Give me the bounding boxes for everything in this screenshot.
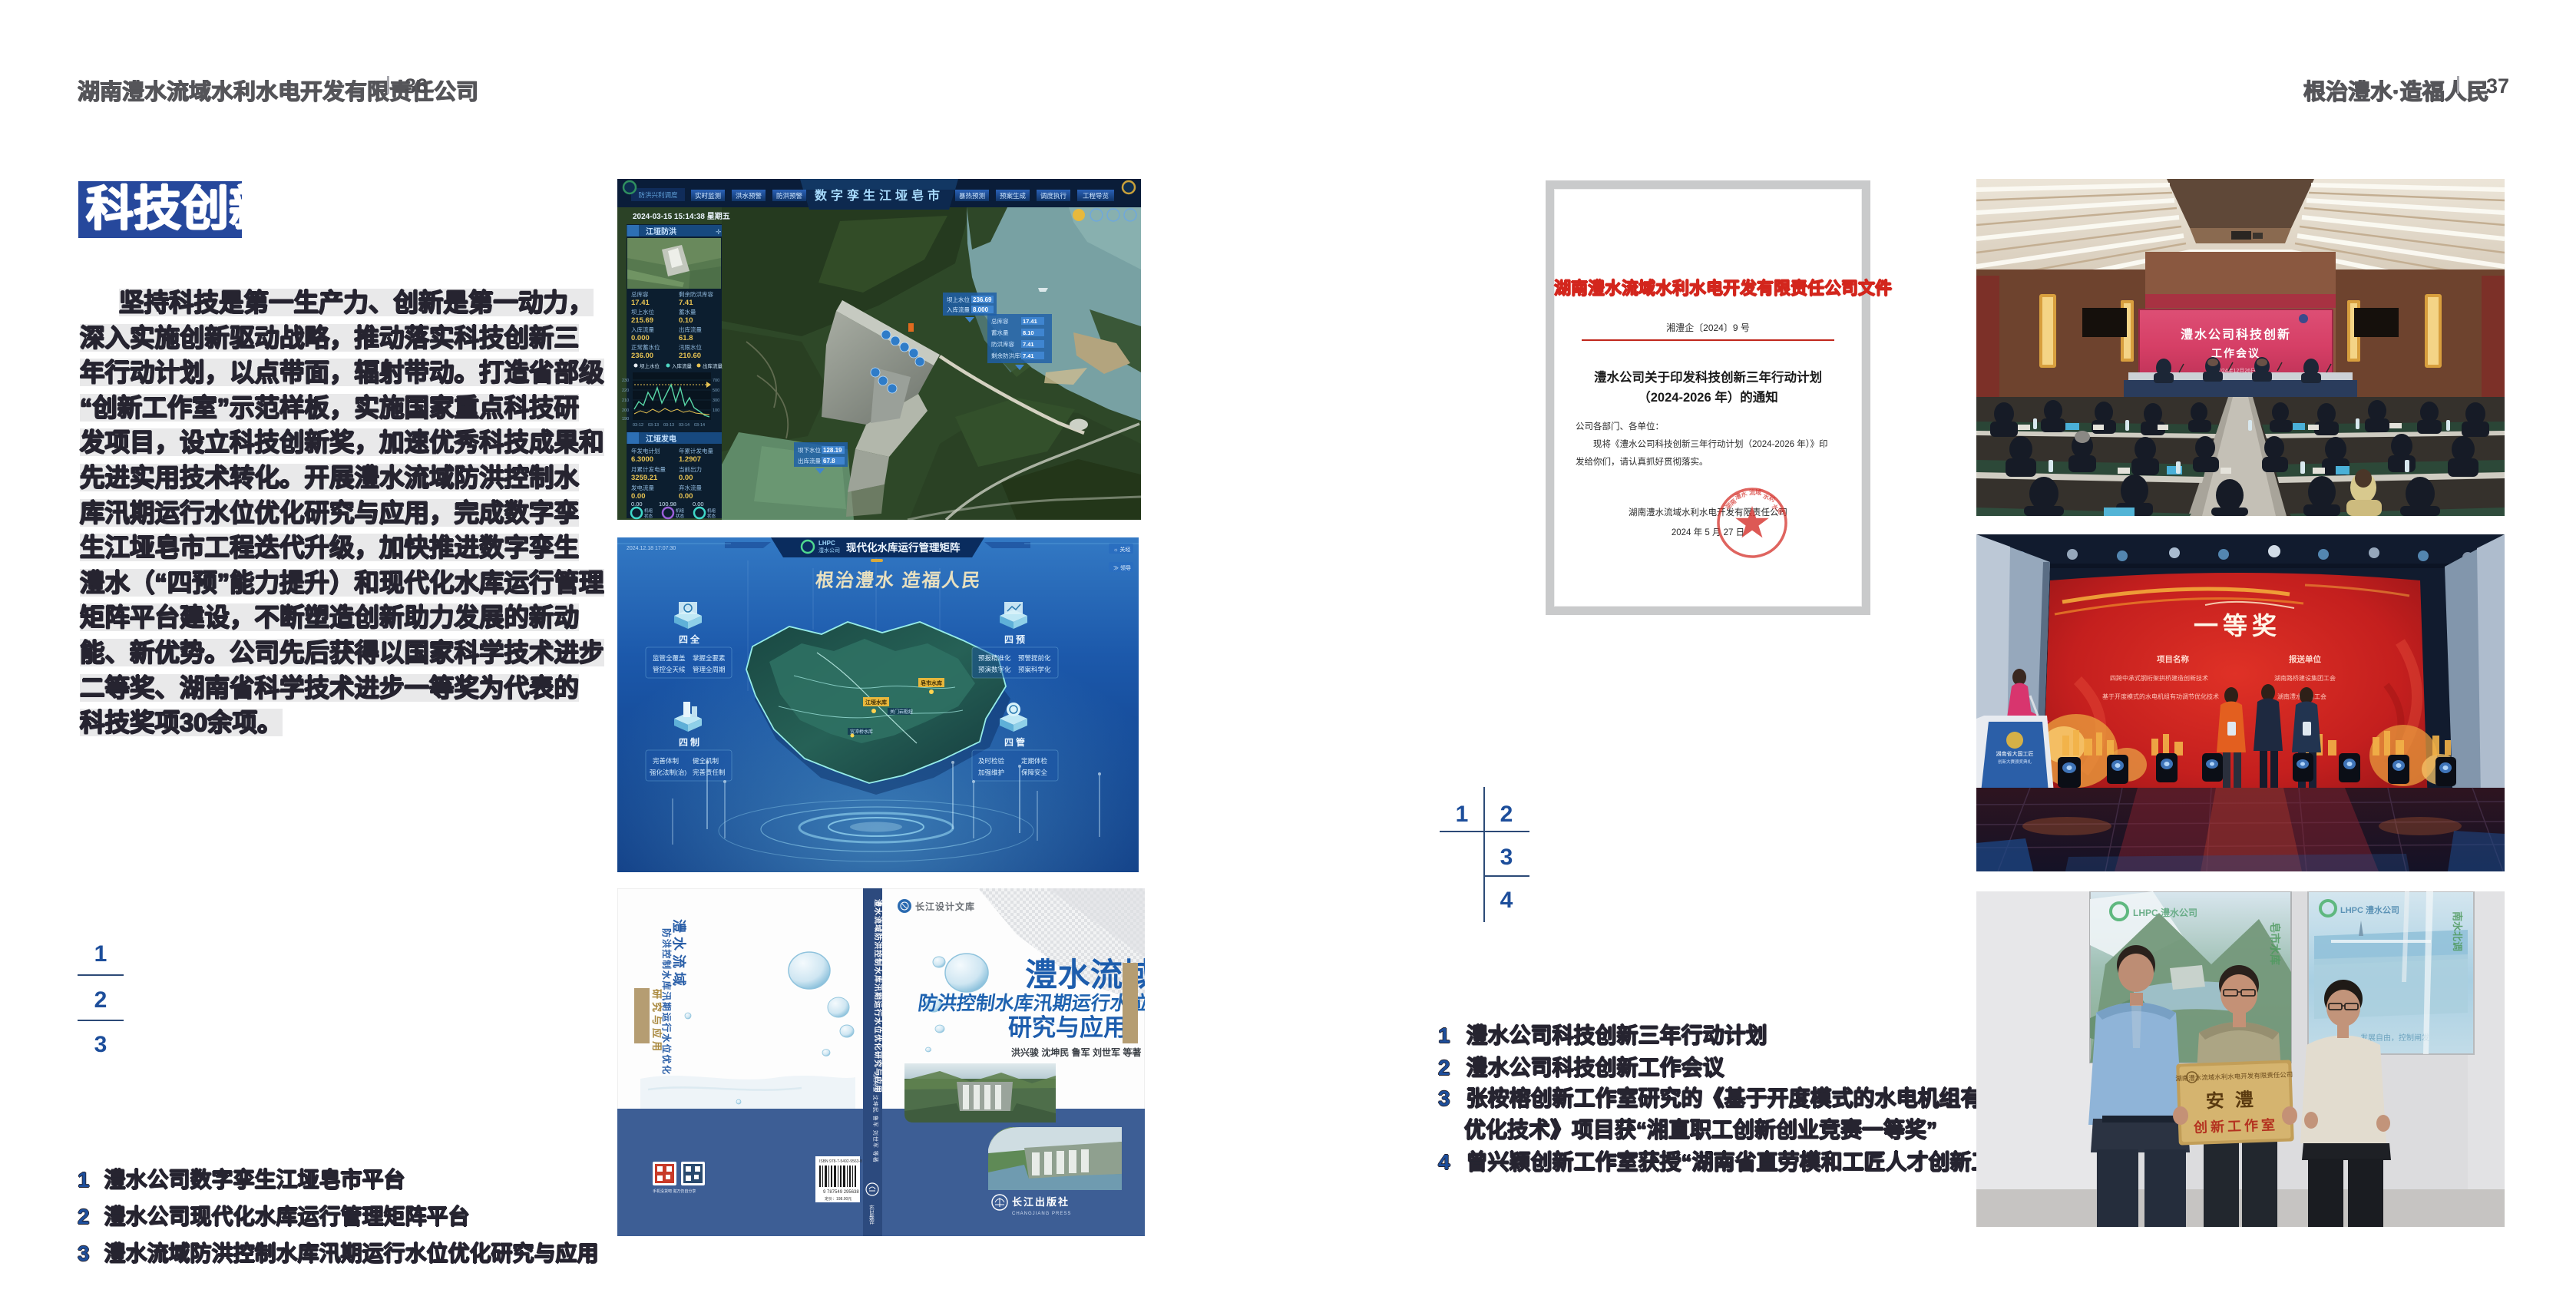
svg-text:弃水流量: 弃水流量 <box>679 484 702 491</box>
svg-text:宜冲桥水库: 宜冲桥水库 <box>850 729 873 735</box>
svg-text:230: 230 <box>622 379 629 383</box>
svg-text:南水北调: 南水北调 <box>2452 911 2463 951</box>
svg-text:实时监测: 实时监测 <box>695 192 721 200</box>
svg-text:水电: 水电 <box>1770 501 1784 516</box>
svg-text:0.00: 0.00 <box>631 501 643 508</box>
svg-text:0.000: 0.000 <box>631 334 650 342</box>
svg-text:220: 220 <box>622 388 629 393</box>
svg-text:CHANGJIANG PRESS: CHANGJIANG PRESS <box>1012 1212 1071 1216</box>
svg-text:掌握全要素: 掌握全要素 <box>693 654 726 662</box>
svg-text:四全: 四全 <box>679 633 702 645</box>
svg-text:03-14: 03-14 <box>679 423 689 428</box>
svg-text:03-12: 03-12 <box>633 423 643 428</box>
svg-text:四预: 四预 <box>1004 634 1027 645</box>
svg-text:LHPC: LHPC <box>818 540 835 547</box>
svg-text:长江出版社: 长江出版社 <box>868 1205 875 1225</box>
svg-text:预演数字化: 预演数字化 <box>978 666 1011 673</box>
svg-text:0.00: 0.00 <box>679 492 693 501</box>
svg-text:定期体检: 定期体检 <box>1021 757 1048 765</box>
svg-text:工程导览: 工程导览 <box>1083 192 1109 200</box>
svg-text:总库容: 总库容 <box>991 317 1009 325</box>
svg-text:ISBN 978-7-5492-9563-8: ISBN 978-7-5492-9563-8 <box>819 1159 862 1164</box>
svg-text:报送单位: 报送单位 <box>2289 654 2322 664</box>
svg-text:汛限水位: 汛限水位 <box>679 343 702 351</box>
svg-text:700: 700 <box>713 379 719 383</box>
svg-text:管控全天候: 管控全天候 <box>653 666 686 673</box>
svg-text:✛: ✛ <box>716 228 722 236</box>
svg-text:0.00: 0.00 <box>631 492 646 501</box>
svg-text:月累计发电量: 月累计发电量 <box>631 465 666 473</box>
svg-text:预案科学化: 预案科学化 <box>1018 666 1051 673</box>
svg-text:四制: 四制 <box>679 736 702 748</box>
svg-text:100.98: 100.98 <box>659 501 676 508</box>
svg-text:2024-03-15 15:14:38 星期五: 2024-03-15 15:14:38 星期五 <box>633 211 730 221</box>
svg-text:128.19: 128.19 <box>823 447 842 454</box>
svg-text:300: 300 <box>713 398 719 403</box>
svg-text:江垭水库: 江垭水库 <box>865 699 887 706</box>
svg-text:67.8: 67.8 <box>823 458 835 465</box>
svg-text:8.10: 8.10 <box>1023 329 1034 336</box>
svg-text:江垭发电: 江垭发电 <box>646 434 676 444</box>
svg-text:正常蓄水位: 正常蓄水位 <box>631 343 660 351</box>
svg-text:≫ 领导: ≫ 领导 <box>1113 564 1131 571</box>
svg-text:入库流量: 入库流量 <box>672 362 693 369</box>
svg-text:坝上水位: 坝上水位 <box>947 296 970 303</box>
svg-text:状态: 状态 <box>707 513 716 519</box>
svg-text:发电流量: 发电流量 <box>631 484 654 491</box>
svg-text:长江设计文库: 长江设计文库 <box>915 901 975 912</box>
svg-text:澧水流域: 澧水流域 <box>671 919 687 990</box>
svg-text:洪兴骏 沈坤民 鲁军 刘世军 等著: 洪兴骏 沈坤民 鲁军 刘世军 等著 <box>1011 1046 1141 1058</box>
svg-text:管理全周期: 管理全周期 <box>693 666 726 673</box>
svg-text:状态: 状态 <box>644 513 653 519</box>
svg-text:研究与应用: 研究与应用 <box>651 989 663 1054</box>
svg-text:状态: 状态 <box>676 513 685 519</box>
svg-text:0.00: 0.00 <box>693 501 704 508</box>
svg-text:皂市水库: 皂市水库 <box>921 679 942 686</box>
svg-text:机组: 机组 <box>644 508 653 514</box>
svg-text:2024.12.18 17:07:30: 2024.12.18 17:07:30 <box>627 546 676 551</box>
svg-text:8.000: 8.000 <box>973 306 989 313</box>
svg-text:湖南路桥建设集团工会: 湖南路桥建设集团工会 <box>2274 674 2336 682</box>
svg-text:强化法制(治): 强化法制(治) <box>650 769 686 776</box>
svg-text:200: 200 <box>622 408 629 413</box>
svg-text:洪兴骏 沈坤民 鲁军 刘世军 等著: 洪兴骏 沈坤民 鲁军 刘世军 等著 <box>872 1074 879 1163</box>
svg-text:剩余防洪库容: 剩余防洪库容 <box>679 290 713 298</box>
svg-text:澧水公司科技创新: 澧水公司科技创新 <box>2181 327 2291 342</box>
svg-text:完善责任制: 完善责任制 <box>693 769 726 776</box>
svg-text:总库容: 总库容 <box>631 290 649 298</box>
svg-text:机组: 机组 <box>707 508 716 514</box>
svg-text:定价：198.00元: 定价：198.00元 <box>825 1196 852 1202</box>
svg-text:年发电计划: 年发电计划 <box>631 447 660 455</box>
svg-text:长江出版社: 长江出版社 <box>1012 1196 1070 1208</box>
svg-text:入库流量: 入库流量 <box>631 326 654 333</box>
svg-text:210.60: 210.60 <box>679 352 701 360</box>
svg-text:蓄水量: 蓄水量 <box>991 329 1009 336</box>
svg-text:当前出力: 当前出力 <box>679 465 702 473</box>
svg-text:湖南省大国工匠: 湖南省大国工匠 <box>1996 750 2034 757</box>
svg-text:防洪控制水库汛期运行水位优化: 防洪控制水库汛期运行水位优化 <box>917 992 1145 1014</box>
svg-text:创新工作室: 创新工作室 <box>2193 1116 2279 1136</box>
svg-text:预报精准化: 预报精准化 <box>978 654 1011 662</box>
svg-text:调度执行: 调度执行 <box>1040 192 1067 200</box>
svg-text:03-13: 03-13 <box>663 423 674 428</box>
svg-text:流域: 流域 <box>1749 488 1761 496</box>
svg-text:加强维护: 加强维护 <box>978 769 1004 776</box>
svg-text:03-13: 03-13 <box>648 423 659 428</box>
svg-text:及时检验: 及时检验 <box>978 757 1005 765</box>
svg-text:暴热预测: 暴热预测 <box>959 192 985 200</box>
svg-text:机组: 机组 <box>676 508 685 514</box>
svg-text:四管: 四管 <box>1004 736 1027 748</box>
svg-text:皂市水库: 皂市水库 <box>2269 922 2281 965</box>
svg-text:数字孪生江垭皂市: 数字孪生江垭皂市 <box>815 188 944 203</box>
svg-text:3259.21: 3259.21 <box>631 474 658 482</box>
svg-text:四跨中承式钢桁架拱桥建造创新技术: 四跨中承式钢桁架拱桥建造创新技术 <box>2110 674 2208 682</box>
svg-text:210: 210 <box>622 398 629 403</box>
svg-text:6.3000: 6.3000 <box>631 455 653 464</box>
svg-text:17.41: 17.41 <box>631 299 650 307</box>
svg-text:工作会议: 工作会议 <box>2211 347 2260 359</box>
svg-text:7.41: 7.41 <box>1023 352 1034 359</box>
svg-text:预案生成: 预案生成 <box>1000 192 1027 200</box>
svg-text:出库流量: 出库流量 <box>703 362 723 369</box>
svg-text:项目名称: 项目名称 <box>2157 654 2190 664</box>
svg-text:防洪兴利调度: 防洪兴利调度 <box>638 191 678 199</box>
svg-text:一等奖: 一等奖 <box>2194 612 2281 640</box>
svg-text:健全机制: 健全机制 <box>693 757 719 765</box>
svg-text:研究与应用: 研究与应用 <box>1008 1014 1127 1041</box>
svg-text:0.00: 0.00 <box>679 474 693 482</box>
svg-text:7.41: 7.41 <box>679 299 693 307</box>
svg-text:LHPC 澧水公司: LHPC 澧水公司 <box>2340 904 2399 915</box>
svg-text:创新大赛颁奖典礼: 创新大赛颁奖典礼 <box>1998 759 2032 765</box>
svg-text:现代化水库运行管理矩阵: 现代化水库运行管理矩阵 <box>846 541 961 554</box>
svg-text:坝上水位: 坝上水位 <box>640 362 660 369</box>
svg-text:☼ 关经: ☼ 关经 <box>1113 546 1130 553</box>
svg-text:基于开度模式的水电机组有功调节优化技术: 基于开度模式的水电机组有功调节优化技术 <box>2102 693 2219 700</box>
svg-text:1.2907: 1.2907 <box>679 455 701 464</box>
svg-text:出库流量: 出库流量 <box>679 326 702 333</box>
svg-text:236.00: 236.00 <box>631 352 653 360</box>
svg-text:保障安全: 保障安全 <box>1021 769 1048 776</box>
svg-text:年累计发电量: 年累计发电量 <box>679 447 713 455</box>
svg-text:江垭防洪: 江垭防洪 <box>646 226 676 236</box>
svg-text:0.10: 0.10 <box>679 316 693 325</box>
svg-text:100: 100 <box>713 408 719 413</box>
svg-text:03-14: 03-14 <box>694 423 705 428</box>
svg-text:入库流量: 入库流量 <box>947 306 970 313</box>
svg-text:防洪库容: 防洪库容 <box>991 340 1014 348</box>
svg-text:剩余防洪库容: 剩余防洪库容 <box>991 352 1026 359</box>
svg-text:7.41: 7.41 <box>1023 341 1034 348</box>
svg-text:500: 500 <box>713 388 719 393</box>
svg-text:LHPC 澧水公司: LHPC 澧水公司 <box>2133 907 2197 918</box>
svg-text:洪水预警: 洪水预警 <box>736 192 762 200</box>
svg-text:完善体制: 完善体制 <box>653 757 679 765</box>
svg-text:根治澧水 造福人民: 根治澧水 造福人民 <box>815 570 983 591</box>
svg-text:17.41: 17.41 <box>1023 318 1037 325</box>
svg-text:9 787549 295638: 9 787549 295638 <box>823 1190 859 1195</box>
svg-text:关门岩枢纽: 关门岩枢纽 <box>890 709 913 715</box>
svg-text:190: 190 <box>622 417 629 422</box>
svg-text:蓄水量: 蓄水量 <box>679 308 696 316</box>
svg-text:预警提前化: 预警提前化 <box>1018 654 1051 662</box>
svg-text:坝上水位: 坝上水位 <box>631 308 654 316</box>
svg-text:出库流量: 出库流量 <box>798 457 821 465</box>
svg-text:215.69: 215.69 <box>631 316 653 325</box>
svg-text:坝下水位: 坝下水位 <box>798 446 821 454</box>
svg-text:236.69: 236.69 <box>973 296 992 303</box>
svg-text:防洪预警: 防洪预警 <box>776 192 803 200</box>
svg-text:安澧: 安澧 <box>2205 1089 2264 1113</box>
svg-text:澧水流域防洪控制水库汛期运行水位优化研究与应用: 澧水流域防洪控制水库汛期运行水位优化研究与应用 <box>873 899 883 1093</box>
svg-text:61.8: 61.8 <box>679 334 693 342</box>
svg-text:手机没货吧 滋万仍自分享: 手机没货吧 滋万仍自分享 <box>653 1189 696 1194</box>
svg-text:澧水公司: 澧水公司 <box>818 547 840 554</box>
svg-text:监管全覆盖: 监管全覆盖 <box>653 654 686 662</box>
